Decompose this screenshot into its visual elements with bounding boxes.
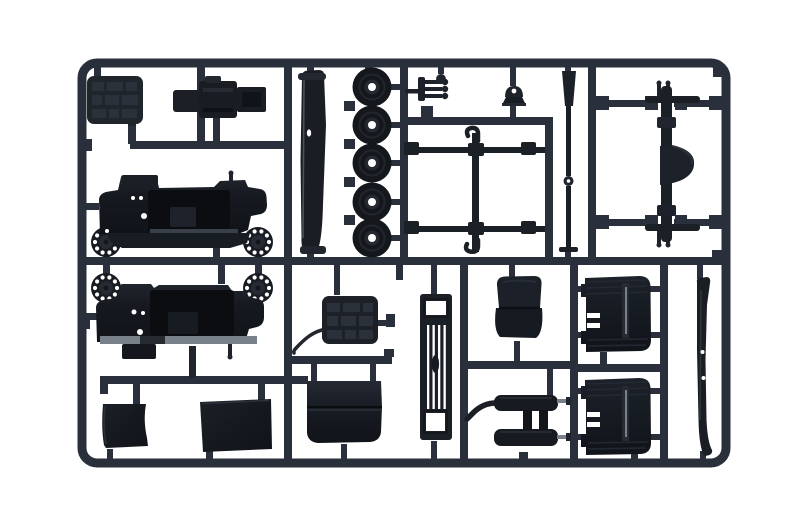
sprue-gate-tab xyxy=(344,101,355,111)
sprue-gate-tab xyxy=(519,452,528,460)
runner-v5 xyxy=(588,63,596,265)
sprue-gate-tab xyxy=(396,265,403,280)
runner-h2b-elbow xyxy=(100,376,108,394)
part-fender-left xyxy=(102,404,148,448)
part-door-lower xyxy=(581,378,651,455)
sprue-stub xyxy=(370,362,376,382)
runner-h1 xyxy=(130,141,288,149)
sprue-gate-tab xyxy=(344,177,355,187)
runner-v4 xyxy=(545,117,553,265)
sprue-stub xyxy=(107,449,113,460)
part-fender-right xyxy=(200,399,272,452)
sprue-stub xyxy=(391,235,401,241)
part-wheel-hub-2 xyxy=(243,227,273,257)
part-road-wheel-4 xyxy=(353,183,392,222)
runner-v2 xyxy=(284,63,292,463)
sprue-gate-tab xyxy=(344,139,355,149)
part-road-wheel-3 xyxy=(353,144,392,183)
sprue-stub xyxy=(510,105,516,118)
part-road-wheel-5 xyxy=(353,219,392,258)
sprue-photo xyxy=(0,0,800,530)
sprue-stub xyxy=(94,63,101,77)
runner-h2b xyxy=(100,376,308,384)
sprue-stub xyxy=(510,63,516,86)
sprue-stub xyxy=(697,265,703,279)
part-road-wheels xyxy=(353,68,392,258)
runner-h3b xyxy=(570,364,668,372)
sprue-stub xyxy=(570,286,582,292)
runner-v3b xyxy=(460,257,468,463)
sprue-stub xyxy=(133,384,140,404)
part-seat xyxy=(495,276,542,338)
sprue-stub xyxy=(570,332,582,338)
sprue-stub xyxy=(255,265,262,274)
sprue-stub xyxy=(206,451,213,460)
sprue-stub xyxy=(341,444,347,460)
part-road-wheel-1 xyxy=(353,68,392,107)
sprue-stub xyxy=(547,369,553,397)
sprue-stub xyxy=(82,203,99,210)
sprue-stub xyxy=(213,118,220,144)
sprue-stub xyxy=(514,341,520,362)
sprue-gate-tab xyxy=(82,139,92,151)
photo-canvas xyxy=(0,0,800,530)
sprue-stub xyxy=(103,265,110,274)
sprue-stub xyxy=(570,388,582,394)
sprue-gate-tab xyxy=(709,96,722,110)
sprue-stub xyxy=(431,265,437,295)
sprue-stub xyxy=(218,265,225,284)
sprue-gate-tab xyxy=(386,314,395,327)
sprue-gate-tab xyxy=(596,215,609,229)
sprue-stub xyxy=(438,63,444,74)
part-gear-lever xyxy=(436,74,446,84)
sprue-stub xyxy=(391,199,401,205)
part-engine-hood xyxy=(307,381,382,443)
sprue-stub xyxy=(649,388,662,394)
sprue-stub xyxy=(570,434,582,440)
sprue-gate-tab xyxy=(344,215,355,225)
sprue-gate-tab xyxy=(421,106,433,118)
sprue-stub xyxy=(391,160,401,166)
part-road-wheel-2 xyxy=(353,106,392,145)
sprue-stub xyxy=(258,384,265,400)
sprue-gate-tab xyxy=(596,96,609,110)
sprue-stub xyxy=(509,265,515,277)
sprue-stub xyxy=(431,441,437,460)
sprue-gate-tab xyxy=(384,349,394,357)
sprue-gate-tab xyxy=(713,66,726,77)
sprue-gate-tab xyxy=(82,318,90,329)
sprue-stub xyxy=(311,362,317,382)
runner-h2 xyxy=(400,117,549,125)
runner-h3 xyxy=(460,361,578,369)
sprue-stub xyxy=(391,84,401,90)
sprue-stub xyxy=(649,286,662,292)
part-door-upper xyxy=(581,276,651,352)
part-windscreen-frame xyxy=(298,70,326,254)
sprue-stub xyxy=(600,352,607,365)
part-radiator-grille xyxy=(420,294,452,440)
part-tread-plate-panel xyxy=(87,76,143,126)
sprue-stub xyxy=(334,265,340,295)
sprue-stub xyxy=(391,122,401,128)
sprue-gate-tab xyxy=(709,215,722,229)
sprue-gate-tab xyxy=(712,250,726,259)
